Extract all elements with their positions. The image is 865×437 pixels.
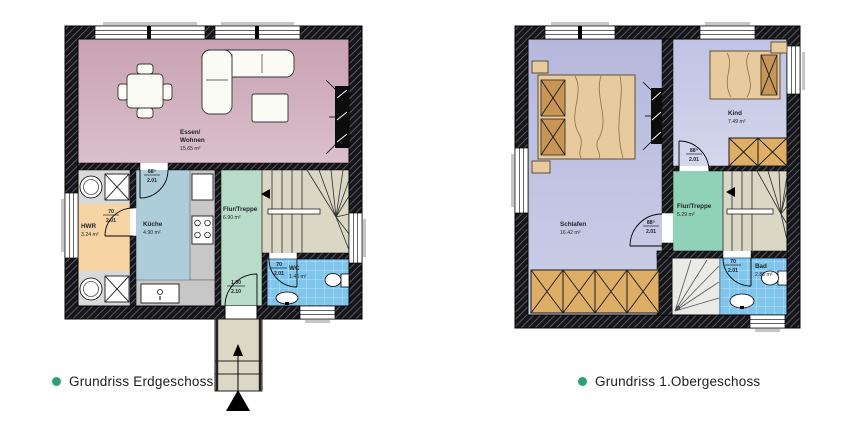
caption-erdgeschoss-label: Grundriss Erdgeschoss xyxy=(69,374,214,389)
legend-bullet-icon xyxy=(52,377,61,386)
area-hwr: 3.24 m² xyxy=(81,232,99,238)
svg-text:1.00: 1.00 xyxy=(231,280,241,286)
svg-text:2.01: 2.01 xyxy=(728,268,738,274)
svg-text:88⁵: 88⁵ xyxy=(690,148,699,154)
area-schlafen: 16.42 m² xyxy=(560,230,581,236)
svg-text:2.01: 2.01 xyxy=(106,218,116,224)
window-og-top-left xyxy=(545,22,615,39)
area-kueche: 4.90 m² xyxy=(143,230,161,236)
window-og-right xyxy=(787,46,805,94)
svg-text:70: 70 xyxy=(730,259,736,265)
room-bad xyxy=(720,258,787,315)
svg-text:2.01: 2.01 xyxy=(147,178,157,184)
label-essen: Essen/ xyxy=(180,129,201,136)
window-right xyxy=(349,213,366,263)
floor-plan-erdgeschoss: Essen/ Wohnen 15.65 m² Küche 4.90 m² HWR… xyxy=(55,18,375,418)
floor-plan-page: Essen/ Wohnen 15.65 m² Küche 4.90 m² HWR… xyxy=(0,0,865,437)
area-kind: 7.49 m² xyxy=(728,119,746,125)
window-og-left xyxy=(511,148,528,213)
window-top-left xyxy=(95,22,205,39)
area-flur-og: 5.29 m² xyxy=(677,212,695,218)
svg-text:2.01: 2.01 xyxy=(646,229,656,235)
svg-text:2.10: 2.10 xyxy=(231,289,241,295)
label-flur: Flur/Treppe xyxy=(223,206,258,213)
single-bed-kind xyxy=(710,51,780,99)
area-flur: 6.90 m² xyxy=(223,215,241,221)
wardrobe-kind xyxy=(729,138,787,166)
toilet xyxy=(325,274,341,287)
room-flur-treppe-og xyxy=(673,171,723,251)
kitchen-sink xyxy=(141,284,179,303)
window-bottom xyxy=(300,306,335,323)
bad-sink xyxy=(730,294,754,308)
toilet-tank-og xyxy=(778,271,787,285)
label-hwr: HWR xyxy=(81,223,96,230)
area-bad: 2.86 m² xyxy=(755,272,773,278)
coffee-table xyxy=(252,94,288,122)
wardrobe-schlafen xyxy=(531,270,659,313)
double-bed xyxy=(538,75,635,159)
toilet-tank xyxy=(341,274,349,287)
cabinet-kind xyxy=(771,42,787,53)
nightstand-bottom xyxy=(532,161,550,173)
label-flur-og: Flur/Treppe xyxy=(677,203,712,210)
fridge xyxy=(192,174,213,200)
room-flur-treppe xyxy=(221,170,262,306)
legend-bullet-icon xyxy=(578,377,587,386)
label-schlafen: Schlafen xyxy=(560,221,586,228)
window-og-bottom xyxy=(750,315,785,332)
caption-erdgeschoss: Grundriss Erdgeschoss xyxy=(52,374,214,389)
svg-text:88⁵: 88⁵ xyxy=(148,169,157,175)
floor-plan-obergeschoss: Schlafen 16.42 m² Kind 7.49 m² Flur/Trep… xyxy=(505,18,825,348)
window-top-right xyxy=(215,22,300,39)
svg-text:88⁵: 88⁵ xyxy=(647,220,656,226)
stove xyxy=(192,216,213,244)
caption-obergeschoss-label: Grundriss 1.Obergeschoss xyxy=(595,374,760,389)
label-wc: WC xyxy=(289,265,300,272)
caption-obergeschoss: Grundriss 1.Obergeschoss xyxy=(578,374,760,389)
label-kueche: Küche xyxy=(143,221,163,228)
label-wohnen: Wohnen xyxy=(180,137,205,144)
label-bad: Bad xyxy=(755,263,767,270)
stair-rail xyxy=(268,209,320,214)
area-wohnen: 15.65 m² xyxy=(180,146,201,152)
svg-text:2.01: 2.01 xyxy=(274,271,284,277)
area-wc: 1.46 m² xyxy=(289,274,307,280)
stair-rail-og xyxy=(727,209,773,214)
svg-text:2.01: 2.01 xyxy=(689,157,699,163)
svg-text:70: 70 xyxy=(276,262,282,268)
window-og-top-right xyxy=(700,22,755,39)
svg-text:70: 70 xyxy=(108,209,114,215)
nightstand-top xyxy=(532,61,548,73)
label-kind: Kind xyxy=(728,110,742,117)
window-left xyxy=(61,193,78,258)
